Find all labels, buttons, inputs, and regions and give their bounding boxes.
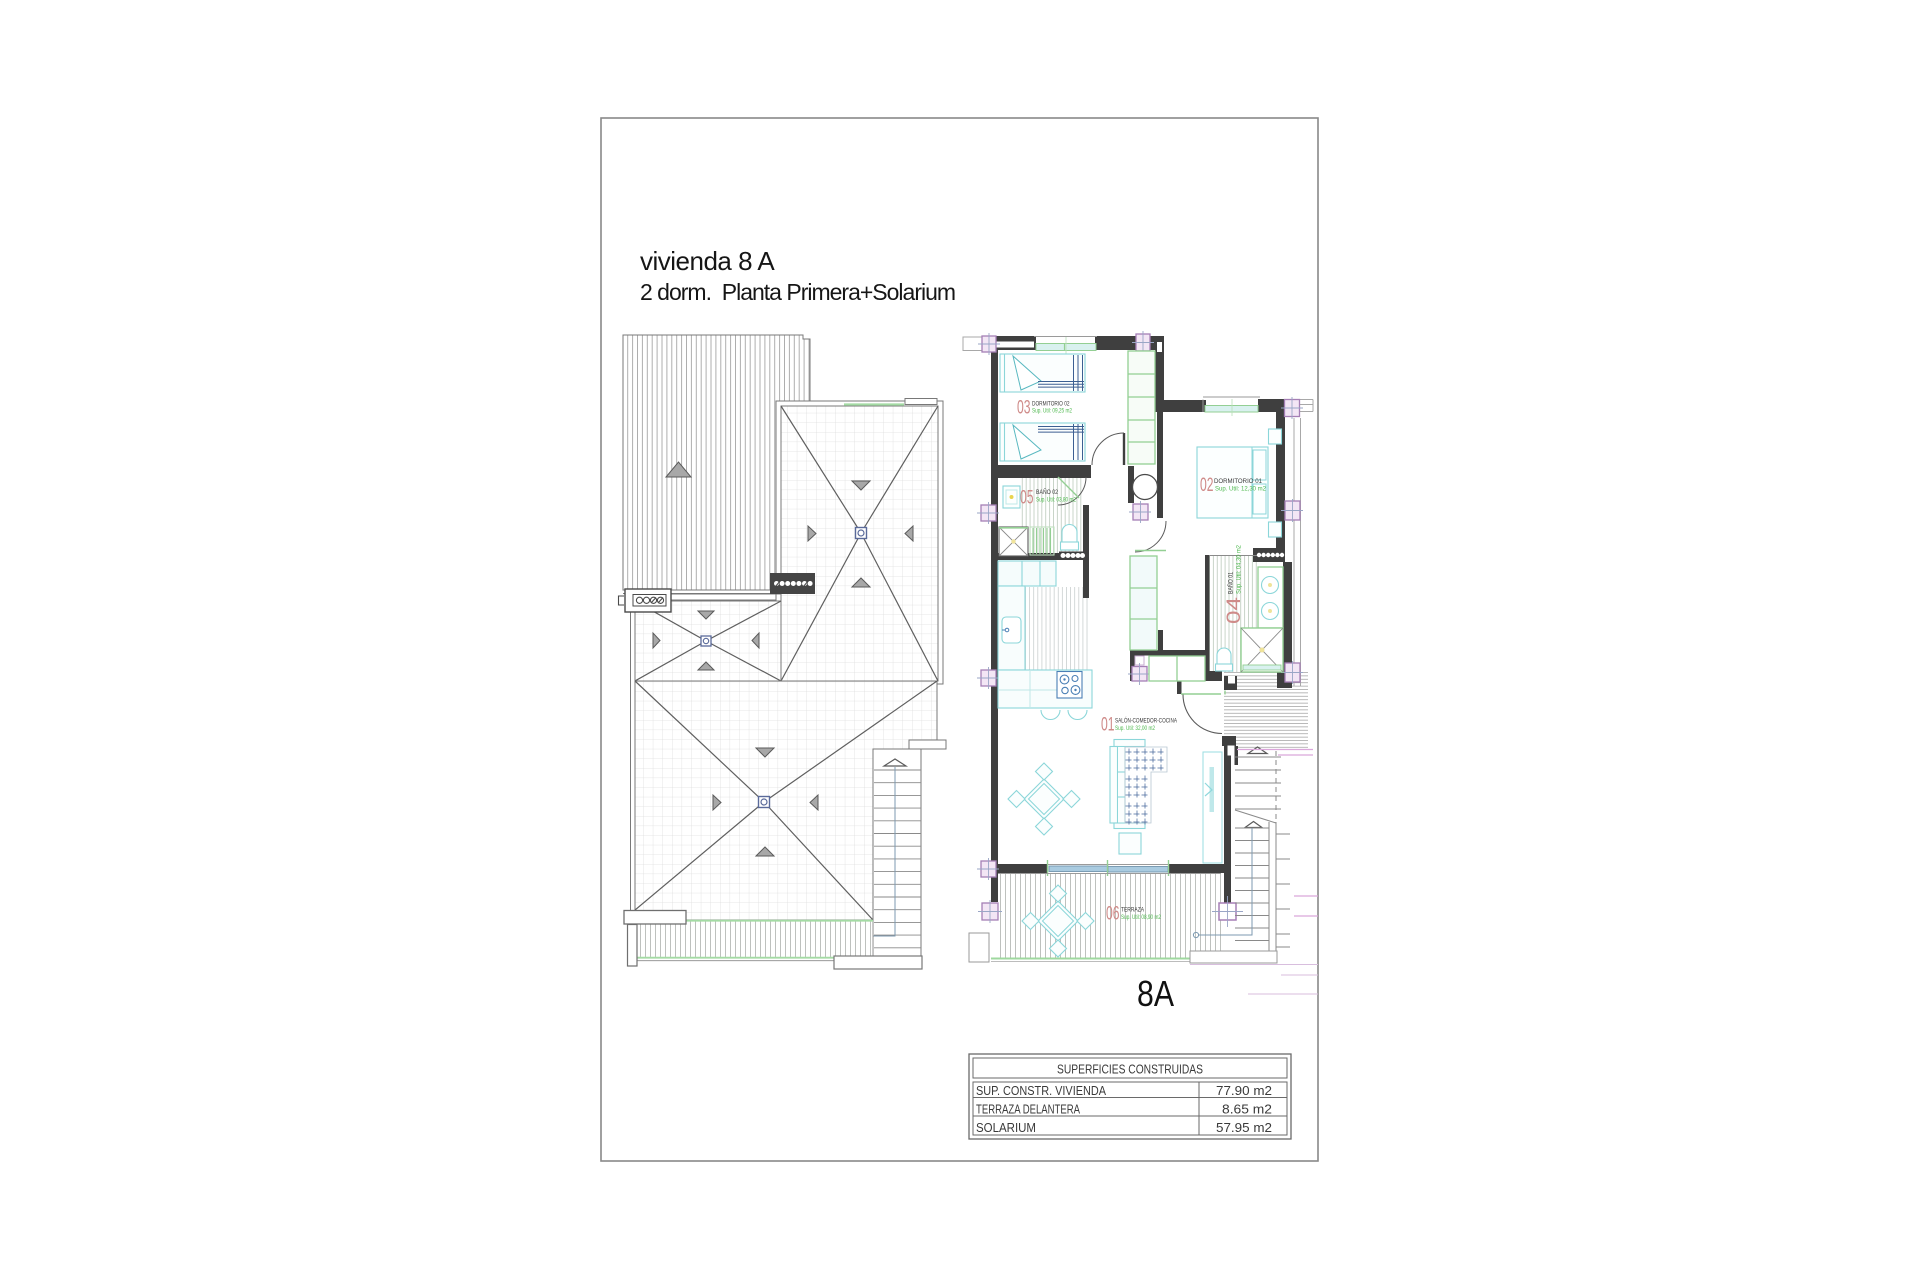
svg-text:TERRAZA: TERRAZA bbox=[1121, 907, 1145, 914]
svg-text:SUP. CONSTR. VIVIENDA: SUP. CONSTR. VIVIENDA bbox=[976, 1084, 1107, 1098]
svg-text:SALÓN-COMEDOR-COCINA: SALÓN-COMEDOR-COCINA bbox=[1115, 718, 1178, 725]
svg-text:04: 04 bbox=[1224, 596, 1245, 624]
svg-text:06: 06 bbox=[1106, 904, 1120, 925]
svg-text:Sup. Util: 12,30 m2: Sup. Util: 12,30 m2 bbox=[1215, 486, 1267, 493]
svg-text:DORMITORIO 02: DORMITORIO 02 bbox=[1032, 401, 1070, 408]
svg-text:SUPERFICIES CONSTRUIDAS: SUPERFICIES CONSTRUIDAS bbox=[1057, 1063, 1203, 1077]
svg-text:2 dorm. Planta Primera+Solari: 2 dorm. Planta Primera+Solarium bbox=[640, 279, 955, 305]
svg-text:Sup. Util: 32,00 m2: Sup. Util: 32,00 m2 bbox=[1115, 725, 1155, 732]
svg-text:SOLARIUM: SOLARIUM bbox=[976, 1121, 1036, 1135]
svg-text:02: 02 bbox=[1200, 475, 1214, 496]
svg-text:05: 05 bbox=[1020, 488, 1034, 509]
svg-text:Sup. Util: 04,30 m2: Sup. Util: 04,30 m2 bbox=[1236, 544, 1243, 594]
svg-text:DORMITORIO 01: DORMITORIO 01 bbox=[1214, 478, 1263, 485]
svg-text:8A: 8A bbox=[1137, 973, 1174, 1014]
svg-text:03: 03 bbox=[1017, 398, 1031, 419]
svg-text:77.90 m2: 77.90 m2 bbox=[1216, 1084, 1272, 1098]
svg-text:Sup. Util: 09,25 m2: Sup. Util: 09,25 m2 bbox=[1032, 408, 1072, 415]
svg-text:Sup. Util: 08,90 m2: Sup. Util: 08,90 m2 bbox=[1121, 914, 1161, 921]
svg-text:8.65 m2: 8.65 m2 bbox=[1222, 1103, 1272, 1117]
svg-text:BAÑO 01: BAÑO 01 bbox=[1228, 572, 1235, 594]
svg-text:01: 01 bbox=[1101, 715, 1115, 736]
svg-text:Sup. Util: 03,80 m2: Sup. Util: 03,80 m2 bbox=[1036, 497, 1076, 504]
svg-text:vivienda 8 A: vivienda 8 A bbox=[640, 246, 775, 276]
svg-text:57.95 m2: 57.95 m2 bbox=[1216, 1121, 1272, 1135]
svg-text:BAÑO 02: BAÑO 02 bbox=[1036, 489, 1058, 496]
svg-text:TERRAZA DELANTERA: TERRAZA DELANTERA bbox=[976, 1103, 1081, 1117]
